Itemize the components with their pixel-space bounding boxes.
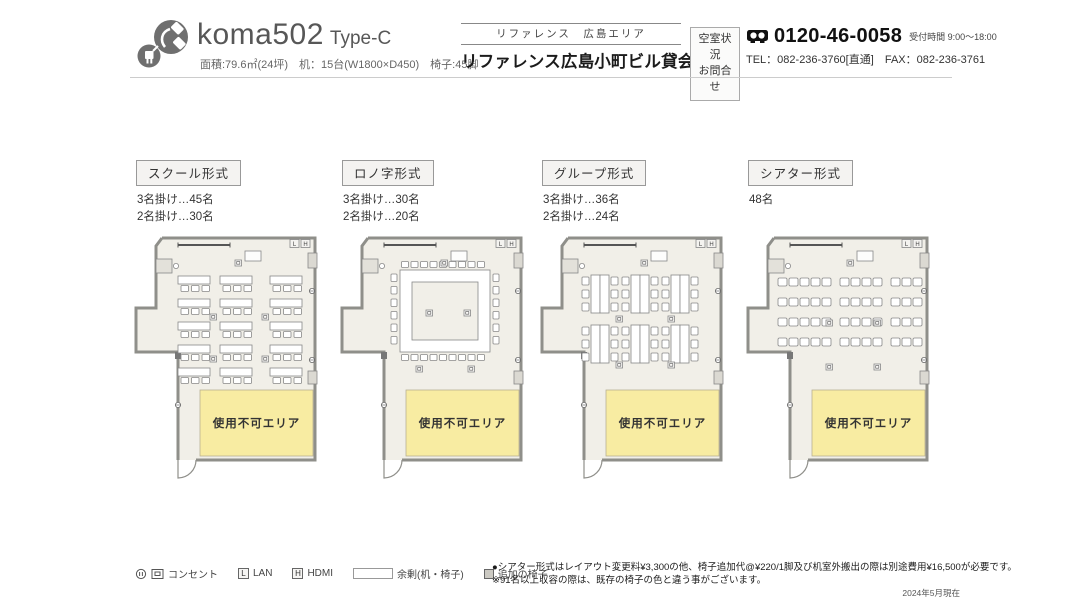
floorplan-group: LH使用不可エリア bbox=[538, 232, 738, 508]
building-title: リファレンス広島小町ビル貸会議室 bbox=[461, 48, 681, 72]
room-name: koma502 bbox=[197, 18, 324, 51]
capacity-group: 3名掛け…36名2名掛け…24名 bbox=[543, 192, 748, 230]
door-icon bbox=[790, 460, 808, 478]
unusable-area-label: 使用不可エリア bbox=[618, 416, 707, 430]
outlet-circle-icon bbox=[309, 288, 314, 293]
door-icon bbox=[384, 460, 402, 478]
room-type: Type-C bbox=[330, 28, 391, 49]
outlet-circle-icon bbox=[787, 402, 792, 407]
layout-column-theater: シアター形式 48名 LH使用不可エリア bbox=[744, 160, 954, 508]
outlet-square-icon bbox=[464, 310, 471, 316]
inquiry-line2: お問合せ bbox=[694, 64, 736, 96]
outlet-square-icon bbox=[874, 364, 881, 370]
outlet-circle-icon bbox=[135, 568, 147, 580]
surplus-desk-box bbox=[451, 251, 467, 261]
outlet-circle-icon bbox=[715, 288, 720, 293]
outlet-square-icon bbox=[641, 260, 648, 266]
freedial-icon bbox=[746, 29, 769, 44]
capacity-line: 2名掛け…24名 bbox=[543, 209, 748, 226]
door-icon bbox=[178, 460, 196, 478]
unusable-area: 使用不可エリア bbox=[606, 390, 719, 456]
wall-stub bbox=[381, 352, 387, 359]
phone-hours: 受付時間 9:00～18:00 bbox=[909, 30, 997, 43]
vacancy-inquiry-button[interactable]: 空室状況 お問合せ bbox=[690, 27, 740, 101]
room-specs: 面積:79.6㎡(24坪) 机：15台(W1800×D450) 椅子:45脚 bbox=[200, 56, 478, 72]
floorplan-school: LH使用不可エリア bbox=[132, 232, 332, 508]
outlet-square-icon bbox=[262, 314, 269, 320]
outlet-square-icon bbox=[416, 366, 423, 372]
svg-text:H: H bbox=[709, 242, 713, 248]
outlet-square-icon bbox=[826, 320, 833, 326]
area-label: リファレンス 広島エリア bbox=[461, 23, 681, 45]
svg-text:H: H bbox=[303, 242, 307, 248]
capacity-line: 3名掛け…45名 bbox=[137, 192, 342, 209]
unusable-area-label: 使用不可エリア bbox=[824, 416, 913, 430]
note-chair-color: ※91名以上収容の際は、既存の椅子の色と違う事がございます。 bbox=[492, 575, 960, 588]
capacity-line: 2名掛け…20名 bbox=[343, 209, 548, 226]
unusable-area-label: 使用不可エリア bbox=[418, 416, 507, 430]
as-of-date: 2024年5月現在 bbox=[492, 588, 960, 599]
outlet-square-icon bbox=[262, 356, 269, 362]
outlet-square-icon bbox=[668, 316, 675, 322]
outlet-circle-icon bbox=[715, 357, 720, 362]
outlet-square-icon bbox=[235, 260, 242, 266]
outlet-square-icon bbox=[616, 316, 623, 322]
capacity-line: 2名掛け…30名 bbox=[137, 209, 342, 226]
outlet-square-icon bbox=[441, 260, 448, 266]
door-icon bbox=[584, 460, 602, 478]
layout-label-theater: シアター形式 bbox=[748, 160, 853, 186]
outlet-square-icon bbox=[847, 260, 854, 266]
outlet-circle-icon bbox=[309, 357, 314, 362]
capacity-line: 3名掛け…30名 bbox=[343, 192, 548, 209]
outlet-circle-icon bbox=[515, 288, 520, 293]
konoji-tables bbox=[391, 262, 499, 361]
capacity-konoji: 3名掛け…30名2名掛け…20名 bbox=[343, 192, 548, 230]
layout-column-school: スクール形式 3名掛け…45名2名掛け…30名 LH使用不可エリア bbox=[132, 160, 342, 508]
surplus-desk-box bbox=[651, 251, 667, 261]
outlet-square-icon bbox=[468, 366, 475, 372]
svg-text:H: H bbox=[509, 242, 513, 248]
header-divider bbox=[130, 77, 952, 78]
lan-icon: L bbox=[238, 568, 249, 579]
outlet-circle-icon bbox=[515, 357, 520, 362]
outlet-square-icon bbox=[826, 364, 833, 370]
surplus-desk-box bbox=[245, 251, 261, 261]
layout-column-group: グループ形式 3名掛け…36名2名掛け…24名 LH使用不可エリア bbox=[538, 160, 748, 508]
surplus-box-icon bbox=[353, 568, 393, 579]
capacity-school: 3名掛け…45名2名掛け…30名 bbox=[137, 192, 342, 230]
legend-hdmi-label: HDMI bbox=[307, 568, 333, 579]
outlet-circle-icon bbox=[581, 402, 586, 407]
legend-surplus-label: 余剰(机・椅子) bbox=[397, 566, 464, 581]
outlet-square-icon bbox=[616, 362, 623, 368]
phone-number: 0120-46-0058 bbox=[774, 25, 902, 48]
koma-logo bbox=[134, 15, 192, 73]
inquiry-line1: 空室状況 bbox=[694, 32, 736, 64]
layout-label-school: スクール形式 bbox=[136, 160, 241, 186]
footer-notes: ●シアター形式はレイアウト変更料¥3,300の他、椅子追加代@¥220/1脚及び… bbox=[492, 562, 960, 599]
hdmi-icon: H bbox=[292, 568, 303, 579]
floorplan-theater: LH使用不可エリア bbox=[744, 232, 944, 508]
outlet-square-icon bbox=[668, 362, 675, 368]
outlet-circle-icon bbox=[921, 288, 926, 293]
tel-number: TEL：082-236-3760[直通] bbox=[746, 54, 874, 66]
wall-stub bbox=[787, 352, 793, 359]
unusable-area: 使用不可エリア bbox=[406, 390, 519, 456]
unusable-area: 使用不可エリア bbox=[812, 390, 925, 456]
outlet-circle-icon bbox=[381, 402, 386, 407]
outlet-circle-icon bbox=[921, 357, 926, 362]
capacity-theater: 48名 bbox=[749, 192, 954, 230]
layout-column-konoji: ロノ字形式 3名掛け…30名2名掛け…20名 LH使用不可エリア bbox=[338, 160, 548, 508]
outlet-circle-icon bbox=[175, 402, 180, 407]
note-theater-fee: ●シアター形式はレイアウト変更料¥3,300の他、椅子追加代@¥220/1脚及び… bbox=[492, 562, 960, 575]
svg-text:H: H bbox=[915, 242, 919, 248]
unusable-area-label: 使用不可エリア bbox=[212, 416, 301, 430]
outlet-square-icon bbox=[151, 568, 164, 580]
capacity-line: 3名掛け…36名 bbox=[543, 192, 748, 209]
unusable-area: 使用不可エリア bbox=[200, 390, 313, 456]
legend-outlet-label: コンセント bbox=[168, 566, 218, 581]
surplus-desk-box bbox=[857, 251, 873, 261]
fax-number: FAX：082-236-3761 bbox=[885, 54, 985, 66]
capacity-line: 48名 bbox=[749, 192, 954, 209]
layout-label-konoji: ロノ字形式 bbox=[342, 160, 434, 186]
outlet-square-icon bbox=[426, 310, 433, 316]
layout-label-group: グループ形式 bbox=[542, 160, 646, 186]
outlet-square-icon bbox=[210, 314, 217, 320]
legend-lan-label: LAN bbox=[253, 568, 272, 579]
outlet-square-icon bbox=[210, 356, 217, 362]
floorplan-konoji: LH使用不可エリア bbox=[338, 232, 538, 508]
page: koma502Type-C 面積:79.6㎡(24坪) 机：15台(W1800×… bbox=[0, 0, 1080, 608]
outlet-square-icon bbox=[874, 320, 881, 326]
